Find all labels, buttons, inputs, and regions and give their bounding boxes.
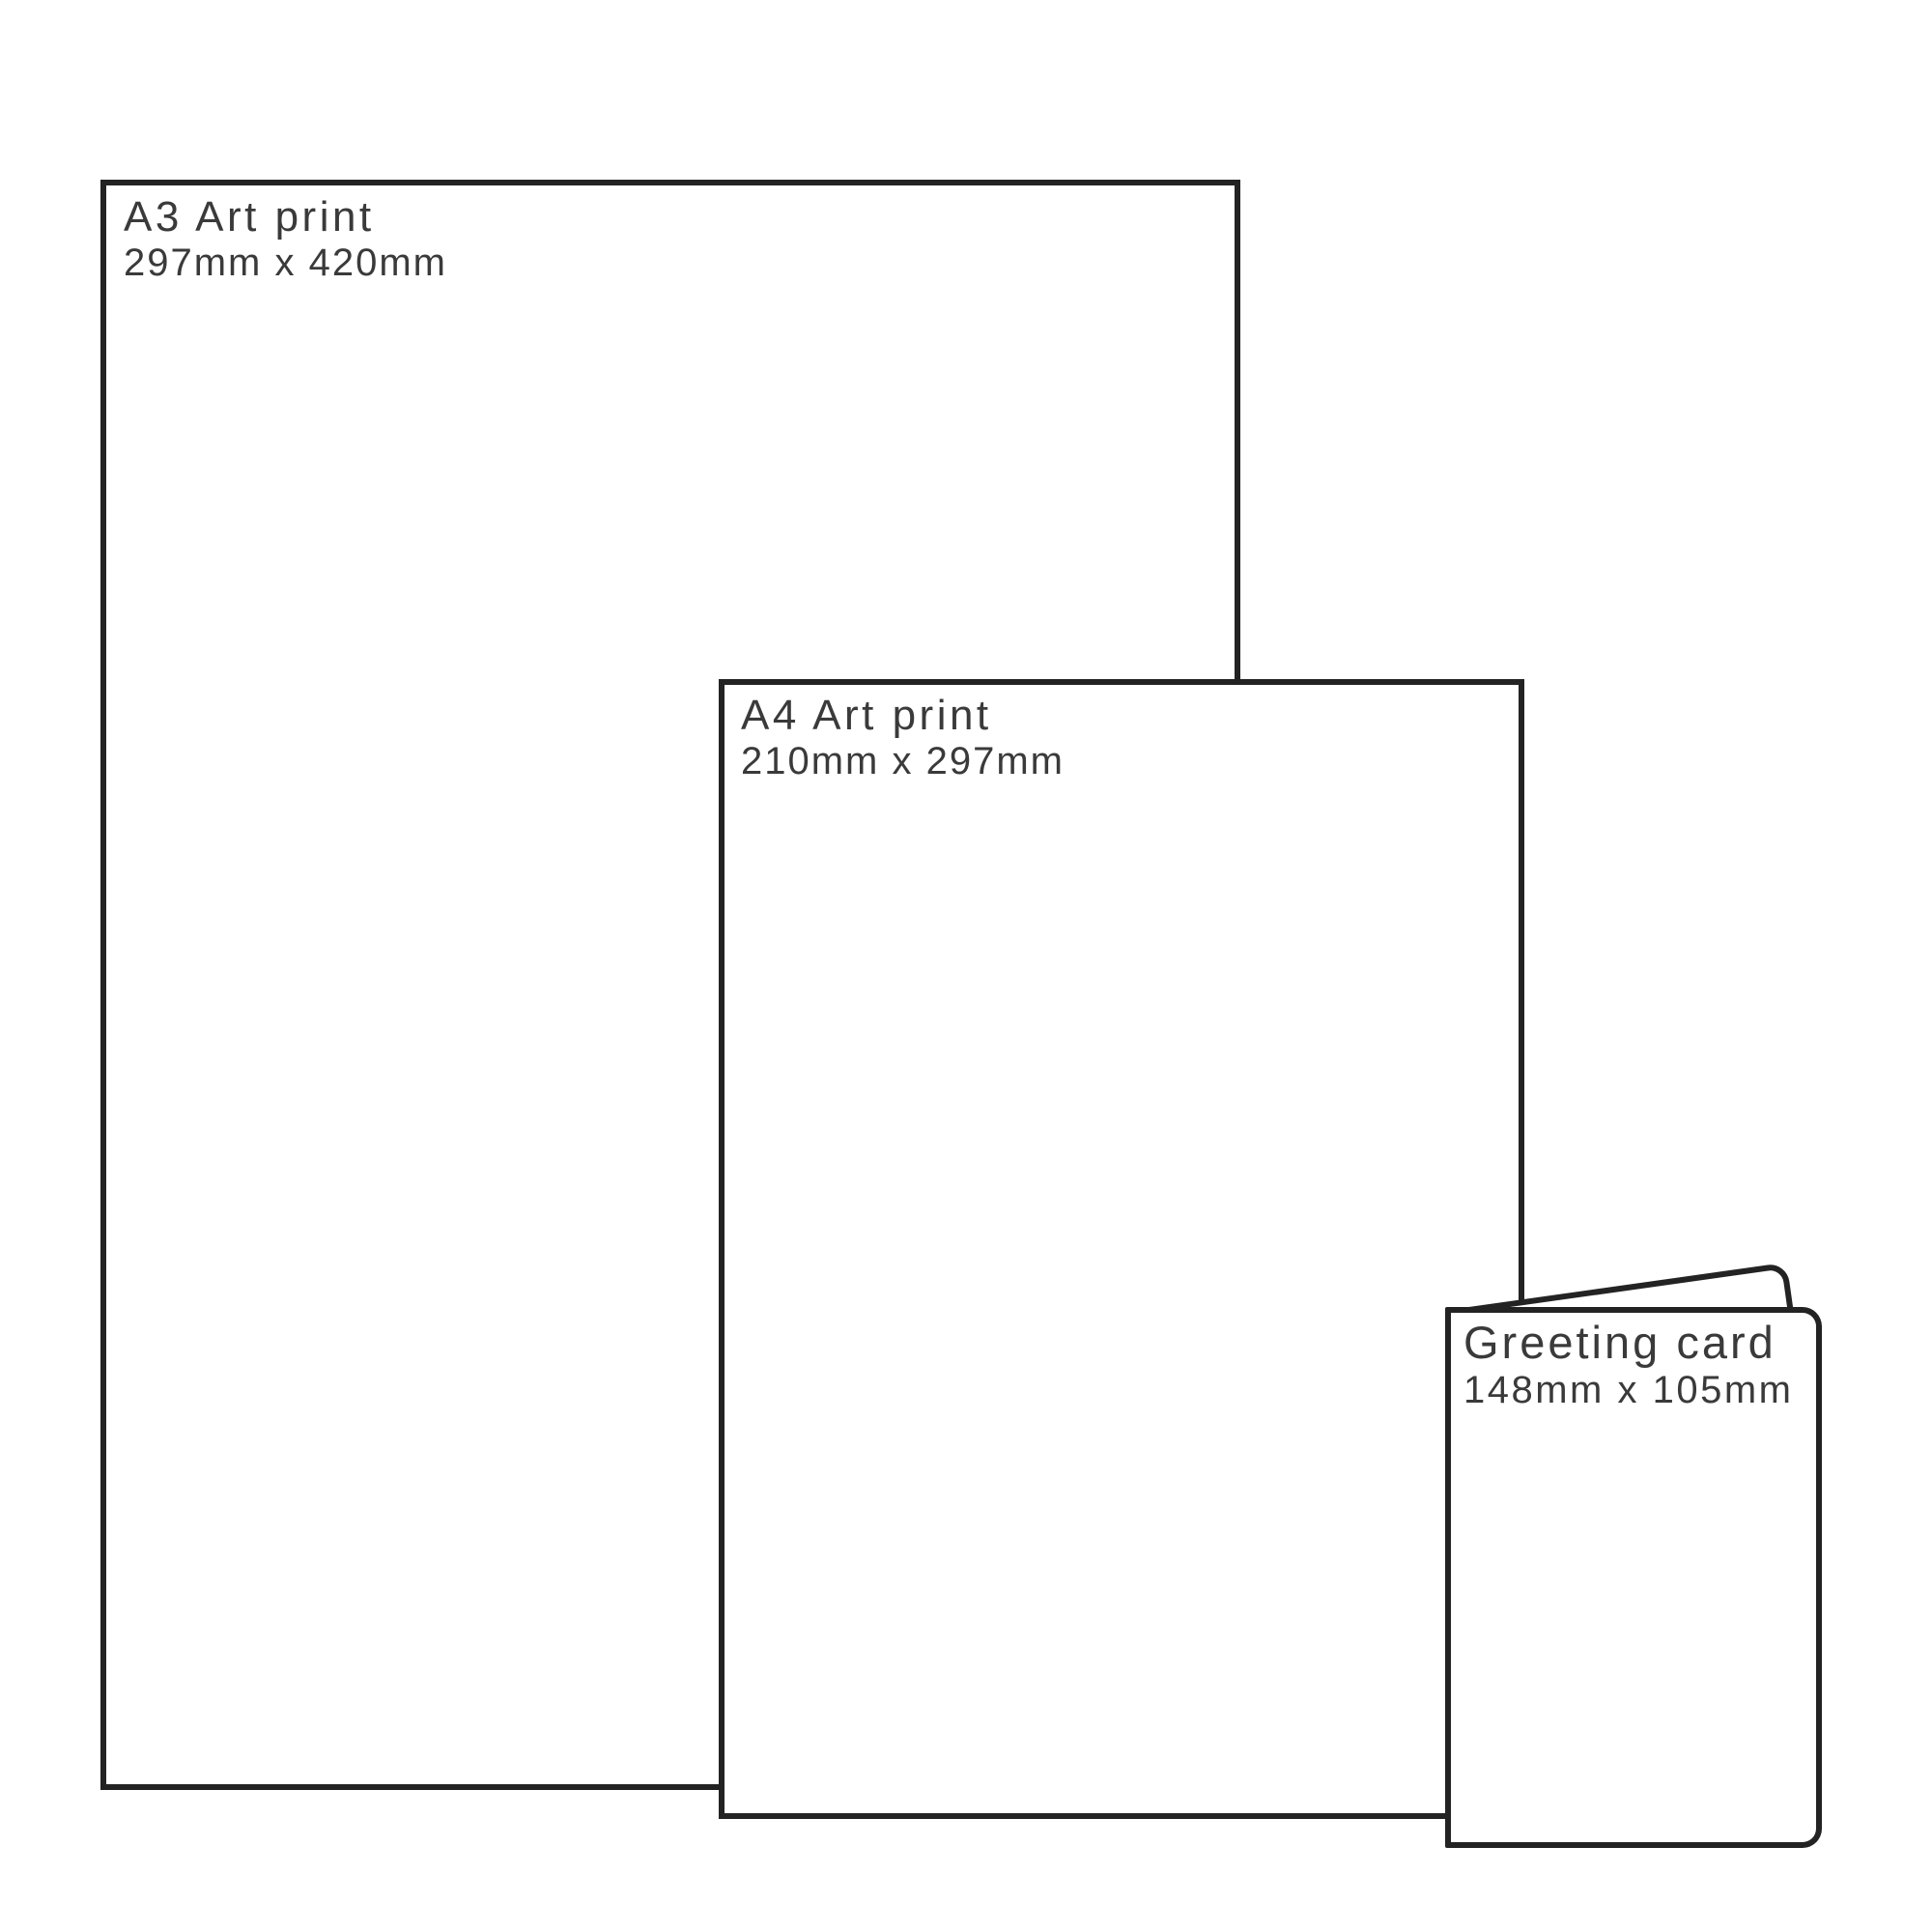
a4-print-label: A4 Art print 210mm x 297mm [741,692,1065,783]
a4-print-outline: A4 Art print 210mm x 297mm [719,679,1524,1819]
greeting-card-label: Greeting card 148mm x 105mm [1463,1318,1793,1412]
greeting-card-title: Greeting card [1463,1318,1793,1368]
a3-print-dimensions: 297mm x 420mm [124,241,447,285]
greeting-card-outline: Greeting card 148mm x 105mm [1445,1307,1822,1848]
greeting-card-dimensions: 148mm x 105mm [1463,1368,1793,1412]
print-size-comparison-diagram: A3 Art print 297mm x 420mm A4 Art print … [0,0,1932,1932]
a3-print-title: A3 Art print [124,193,447,241]
a3-print-label: A3 Art print 297mm x 420mm [124,193,447,285]
a4-print-dimensions: 210mm x 297mm [741,740,1065,783]
a4-print-title: A4 Art print [741,692,1065,740]
